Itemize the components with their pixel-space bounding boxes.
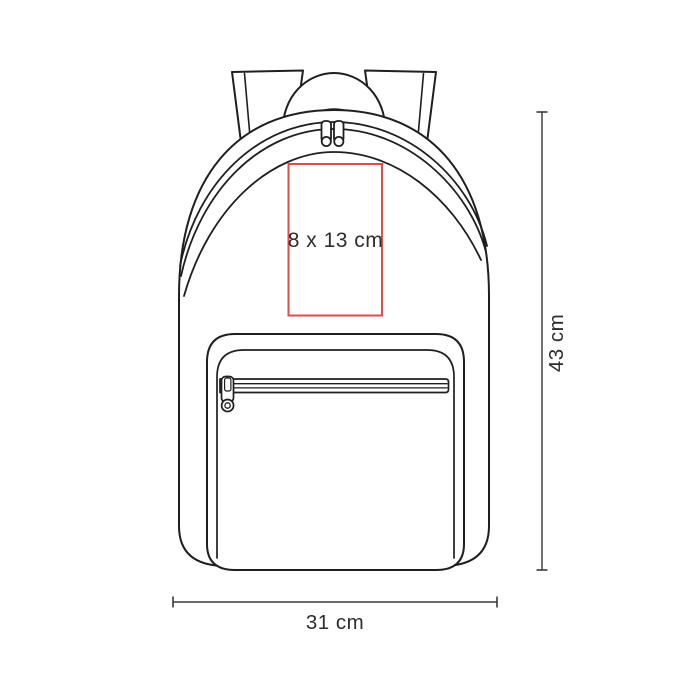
zipper-slider-ring-outer	[222, 400, 234, 412]
backpack-print-area-diagram: 8 x 13 cm 43 cm 31 cm	[0, 0, 700, 700]
zipper-pull-left-ring	[322, 137, 331, 146]
zipper-band	[220, 379, 449, 393]
zipper-slider-body	[225, 378, 231, 391]
front-pocket	[207, 334, 464, 570]
height-dimension-label-group: 43 cm	[545, 314, 568, 372]
print-area-label-group: 8 x 13 cm	[288, 229, 384, 252]
zipper-pull-right-ring	[334, 137, 343, 146]
diagram-canvas: 8 x 13 cm 43 cm 31 cm	[0, 0, 700, 700]
height-dimension-label: 43 cm	[545, 314, 568, 372]
width-dimension-label-group: 31 cm	[306, 611, 364, 634]
width-dimension	[173, 597, 497, 608]
width-dimension-label: 31 cm	[306, 611, 364, 634]
print-area-label: 8 x 13 cm	[288, 229, 384, 252]
pocket-outer-outline	[207, 334, 464, 570]
backpack-line-art	[179, 71, 489, 571]
